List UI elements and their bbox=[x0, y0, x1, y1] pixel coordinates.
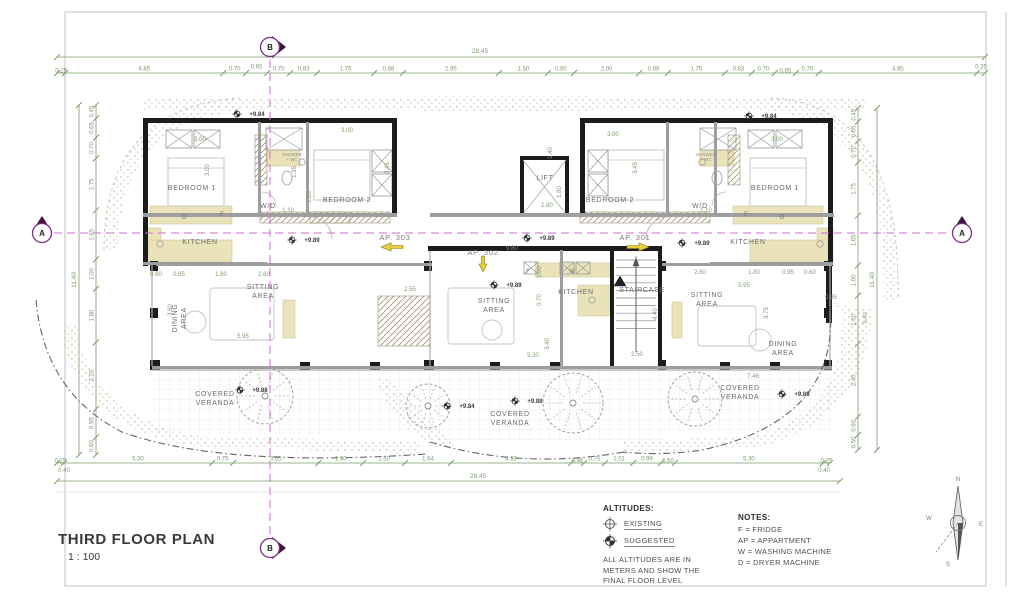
room-label: AREA bbox=[772, 350, 794, 357]
wall-black bbox=[392, 118, 397, 217]
dim-segment-label: 0.50 bbox=[852, 436, 858, 448]
room-label: VERANDA bbox=[721, 394, 760, 401]
note-item: W = WASHING MACHINE bbox=[738, 547, 832, 558]
dim-segment-label: 0.83 bbox=[733, 67, 745, 73]
dim-segment-label: 1.75 bbox=[90, 178, 96, 190]
dim-inplan-label: 1.00 bbox=[537, 266, 543, 278]
stipple-area bbox=[588, 98, 866, 110]
room-label: W/D bbox=[692, 203, 708, 210]
compass-w: W bbox=[926, 516, 932, 522]
room-label: VERANDA bbox=[491, 420, 530, 427]
apartment-label: AP. 301 bbox=[619, 233, 650, 242]
room-label: COVERED bbox=[720, 385, 760, 392]
apartment-label: AP. 302 bbox=[467, 248, 498, 257]
dim-segment-label: 1.00 bbox=[852, 274, 858, 286]
wall-gray bbox=[666, 122, 669, 213]
room-label: KITCHEN bbox=[182, 239, 218, 246]
appliance-label: D bbox=[780, 215, 785, 221]
altitude-value: +9.88 bbox=[252, 388, 268, 394]
room-label: BEDROOM 1 bbox=[751, 185, 799, 192]
dim-inplan-label: 5.95 bbox=[738, 283, 750, 289]
dim-segment-label: 1.65 bbox=[852, 234, 858, 246]
wall-black bbox=[150, 308, 158, 318]
room-label: AREA bbox=[252, 293, 274, 300]
dim-segment-label: 1.64 bbox=[422, 457, 434, 463]
dim-segment-label: 1.50 bbox=[378, 457, 390, 463]
dim-segment-label: 1.01 bbox=[613, 457, 625, 463]
altitude-value: +9.88 bbox=[794, 392, 810, 398]
wall-gray bbox=[560, 250, 563, 366]
dim-inplan-label: 2.60 bbox=[258, 272, 270, 278]
floor-plan-drawing: 28.450.254.850.700.650.700.831.750.882.9… bbox=[0, 0, 1024, 594]
wall-black bbox=[143, 118, 148, 217]
altitude-value: +9.84 bbox=[761, 114, 777, 120]
dim-segment-label: 1.75 bbox=[691, 67, 703, 73]
dim-segment-label: 0.70 bbox=[852, 145, 858, 157]
dim-segment-label: 2.40 bbox=[852, 374, 858, 386]
dim-segment-label: 0.83 bbox=[298, 67, 310, 73]
suggested-altitude-icon bbox=[603, 534, 619, 548]
dim-inplan-label: 0.60 bbox=[150, 272, 162, 278]
room-label: LIFT bbox=[536, 175, 553, 182]
dim-segment-label: 0.65 bbox=[852, 125, 858, 137]
dim-inplan-label: 0.95 bbox=[173, 272, 185, 278]
hatched-wall bbox=[728, 135, 740, 185]
counter bbox=[283, 300, 295, 338]
dim-inplan-label: 2.60 bbox=[694, 270, 706, 276]
wall-gray bbox=[662, 366, 832, 369]
dim-segment-label: 0.75 bbox=[589, 457, 601, 463]
dim-segment-label: 0.70 bbox=[229, 67, 241, 73]
title-block: THIRD FLOOR PLAN 1 : 100 bbox=[58, 531, 215, 563]
existing-altitude-icon bbox=[603, 517, 619, 531]
stair-arrow-head bbox=[633, 258, 639, 266]
dim-inplan-label: 3.00 bbox=[341, 128, 353, 134]
dim-segment-label: 1.80 bbox=[90, 309, 96, 321]
dim-segment-label: 1.75 bbox=[852, 182, 858, 194]
drawing-scale: 1 : 100 bbox=[68, 551, 215, 563]
altitude-value: +9.84 bbox=[249, 112, 265, 118]
suggested-label: SUGGESTED bbox=[624, 536, 675, 547]
wall-gray bbox=[662, 263, 832, 266]
wall-black bbox=[610, 250, 614, 368]
dim-segment-label: 0.88 bbox=[648, 67, 660, 73]
counter bbox=[672, 302, 682, 338]
veranda-paving-area bbox=[152, 372, 434, 434]
room-label: AREA bbox=[181, 307, 188, 329]
micro-label: + WC bbox=[700, 157, 711, 162]
dim-inplan-label: 1.10 bbox=[282, 208, 294, 214]
note-item: D = DRYER MACHINE bbox=[738, 558, 832, 569]
wall-gray bbox=[156, 263, 432, 266]
wall-gray bbox=[714, 122, 717, 213]
note-item: AP = APPARTMENT bbox=[738, 536, 832, 547]
grid-marker-letter: A bbox=[959, 229, 965, 238]
wall-black bbox=[565, 156, 569, 216]
room-label: VERANDA bbox=[196, 400, 235, 407]
room-label: BEDROOM 1 bbox=[168, 185, 216, 192]
dim-segment-label: 0.88 bbox=[383, 67, 395, 73]
dim-segment-label: 0.65 bbox=[251, 65, 263, 71]
room-label: BEDROOM 2 bbox=[586, 197, 634, 204]
altitude-value: +9.89 bbox=[539, 236, 555, 242]
altitudes-heading: ALTITUDES: bbox=[603, 504, 735, 513]
dim-segment-label: 1.50 bbox=[518, 67, 530, 73]
altitude-value: +9.89 bbox=[694, 241, 710, 247]
existing-label: EXISTING bbox=[624, 519, 662, 530]
dim-segment-label: 4.85 bbox=[892, 67, 904, 73]
wall-gray bbox=[518, 214, 569, 217]
dim-segment-label: 0.95 bbox=[90, 417, 96, 429]
dim-segment-label: 2.95 bbox=[445, 67, 457, 73]
dim-extra-label: 0.40 bbox=[818, 468, 830, 474]
bed bbox=[168, 158, 224, 206]
dim-inplan-label: 3.00 bbox=[771, 137, 783, 143]
grid-marker-letter: B bbox=[267, 544, 273, 553]
room-label: SITTING bbox=[478, 298, 511, 305]
dim-inplan-label: 3.75 bbox=[764, 307, 770, 319]
dim-segment-label: 5.30 bbox=[743, 457, 755, 463]
appliance-label: W bbox=[569, 269, 575, 275]
altitudes-note: ALL ALTITUDES ARE IN METERS AND SHOW THE… bbox=[603, 555, 735, 587]
room-label: W/D bbox=[260, 203, 276, 210]
stipple-area bbox=[420, 96, 588, 112]
dim-segment-label: 0.75 bbox=[217, 457, 229, 463]
dim-inplan-label: 7.46 bbox=[747, 374, 759, 380]
grid-marker-letter: B bbox=[267, 43, 273, 52]
floor-plan-sheet: 28.450.254.850.700.650.700.831.750.882.9… bbox=[0, 0, 1024, 594]
dim-segment-label: 3.05 bbox=[270, 457, 282, 463]
dim-segment-label: 1.75 bbox=[340, 67, 352, 73]
room-label: SITTING bbox=[691, 292, 724, 299]
sofa bbox=[448, 288, 514, 344]
dim-inplan-label: 3.00 bbox=[205, 164, 211, 176]
dim-inplan-label: 0.95 bbox=[782, 270, 794, 276]
apartment-direction-arrow bbox=[381, 243, 403, 251]
bed bbox=[314, 150, 370, 200]
dim-inplan-label: 4.40 bbox=[653, 308, 659, 320]
dim-segment-label: 5.30 bbox=[132, 457, 144, 463]
dim-segment-label: 1.60 bbox=[852, 313, 858, 325]
dim-inplan-label: 2.50 bbox=[631, 352, 643, 358]
dim-segment-label: 0.80 bbox=[555, 67, 567, 73]
room-label: SITTING bbox=[247, 284, 280, 291]
dim-total-label: 28.45 bbox=[470, 473, 487, 480]
room-label: AREA bbox=[483, 307, 505, 314]
stipple-area bbox=[143, 98, 420, 110]
dim-segment-label: 1.00 bbox=[90, 268, 96, 280]
wall-gray bbox=[428, 366, 664, 369]
dim-segment-label: 0.65 bbox=[90, 121, 96, 133]
dim-segment-label: 1.65 bbox=[90, 228, 96, 240]
dim-inplan-label: 1.35 bbox=[292, 166, 298, 178]
altitude-value: +9.89 bbox=[304, 238, 320, 244]
dim-segment-label: 0.25 bbox=[55, 69, 67, 75]
dim-segment-label: 0.65 bbox=[780, 69, 792, 75]
dim-segment-label: 0.50 bbox=[662, 459, 674, 465]
wall-gray bbox=[152, 366, 434, 369]
compass-e: E bbox=[979, 522, 983, 528]
room-label: COVERED bbox=[195, 391, 235, 398]
dim-inplan-label: 1.80 bbox=[215, 272, 227, 278]
note-item: F = FRIDGE bbox=[738, 525, 832, 536]
dim-segment-label: 0.45 bbox=[90, 105, 96, 117]
dim-inplan-label: 3.40 bbox=[545, 338, 551, 350]
dim-inplan-label: 1.80 bbox=[557, 186, 563, 198]
table bbox=[482, 320, 502, 340]
room-label: BEDROOM 2 bbox=[323, 197, 371, 204]
dim-extra-label: 0.40 bbox=[58, 468, 70, 474]
dim-segment-label: 0.70 bbox=[273, 67, 285, 73]
dim-segment-label: 0.70 bbox=[758, 67, 770, 73]
dim-segment-label: 0.70 bbox=[90, 142, 96, 154]
grid-marker-letter: A bbox=[39, 229, 45, 238]
notes-heading: NOTES: bbox=[738, 513, 832, 522]
veranda-paving bbox=[152, 372, 832, 442]
dim-total-label: 11.40 bbox=[869, 272, 876, 288]
drawing-title: THIRD FLOOR PLAN bbox=[58, 531, 215, 548]
dim-inplan-label: 0.60 bbox=[804, 270, 816, 276]
dim-inplan-label: 5.30 bbox=[527, 353, 539, 359]
wall-gray bbox=[258, 122, 261, 213]
dim-segment-label: 2.25 bbox=[90, 369, 96, 381]
wall-black bbox=[828, 118, 833, 217]
dim-segment-label: 0.46 bbox=[572, 459, 584, 465]
dim-total-label: 11.40 bbox=[71, 272, 78, 288]
wall-black bbox=[828, 217, 833, 266]
dim-segment-label: 0.45 bbox=[852, 108, 858, 120]
dim-segment-label: 0.70 bbox=[802, 67, 814, 73]
dim-inplan-label: 2.55 bbox=[404, 287, 416, 293]
dim-segment-label: 2.00 bbox=[601, 67, 613, 73]
compass-rose: NESW bbox=[926, 477, 983, 568]
wall-black bbox=[580, 118, 833, 123]
stair-up-marker bbox=[614, 276, 626, 286]
compass-s: S bbox=[946, 562, 950, 568]
bed bbox=[608, 150, 664, 200]
bed bbox=[750, 158, 806, 206]
wall-black bbox=[580, 118, 585, 217]
notes-block: NOTES: F = FRIDGE AP = APPARTMENT W = WA… bbox=[738, 513, 832, 569]
staircase bbox=[614, 256, 656, 352]
dim-inplan-label: 3.00 bbox=[607, 132, 619, 138]
appliance-label: F bbox=[526, 269, 530, 275]
dim-total-label: 28.45 bbox=[472, 48, 489, 55]
dim-inplan-label: 3.45 bbox=[633, 162, 639, 174]
dim-inplan-label: 1.00 bbox=[307, 191, 313, 203]
altitudes-legend: ALTITUDES: EXISTING SUGGESTED ALL ALTITU… bbox=[603, 504, 735, 587]
compass-n: N bbox=[956, 477, 960, 483]
wall-black bbox=[520, 156, 524, 216]
dim-inplan-label: 5.95 bbox=[237, 334, 249, 340]
dim-segment-label: 4.85 bbox=[138, 67, 150, 73]
sofa bbox=[698, 306, 756, 346]
dim-segment-label: 0.25 bbox=[975, 65, 987, 71]
dim-segment-label: 0.99 bbox=[641, 457, 653, 463]
room-label: KITCHEN bbox=[730, 239, 766, 246]
dim-segment-label: 4.30 bbox=[505, 457, 517, 463]
appliance-label: D bbox=[182, 215, 187, 221]
dim-inplan-label: 1.80 bbox=[748, 270, 760, 276]
altitude-value: +9.89 bbox=[506, 283, 522, 289]
micro-label: + WC bbox=[286, 157, 297, 162]
dim-inplan-label: 9.80 bbox=[506, 246, 518, 252]
dim-inplan-label: 3.00 bbox=[194, 137, 206, 143]
hatched-wall bbox=[378, 296, 430, 346]
altitude-value: +9.84 bbox=[459, 404, 475, 410]
dim-inplan-label: 0.70 bbox=[537, 294, 543, 306]
apartment-direction-arrow bbox=[479, 256, 487, 272]
dim-inplan-label: 0.95 bbox=[825, 295, 837, 301]
dim-segment-label: 0.60 bbox=[90, 440, 96, 452]
wall-black bbox=[143, 217, 148, 266]
dim-segment-label: 0.60 bbox=[852, 419, 858, 431]
dim-segment-label: 1.60 bbox=[335, 457, 347, 463]
room-label: DINING bbox=[769, 341, 798, 348]
wall-black bbox=[520, 156, 569, 160]
room-label: STAIRCASE bbox=[619, 287, 664, 294]
room-label: KITCHEN bbox=[558, 289, 594, 296]
appliance-label: F bbox=[744, 212, 748, 218]
dim-inplan-label: 1.40 bbox=[548, 147, 554, 159]
dim-inplan-label: 3.45 bbox=[385, 162, 391, 174]
room-label: COVERED bbox=[490, 411, 530, 418]
appliance-label: F bbox=[220, 212, 224, 218]
toilet bbox=[282, 171, 292, 185]
veranda-paving-area bbox=[660, 372, 832, 430]
room-label: DINING bbox=[172, 304, 179, 333]
room-label: AREA bbox=[696, 301, 718, 308]
wall-black bbox=[826, 263, 832, 323]
apartment-label: AP. 303 bbox=[379, 233, 410, 242]
dim-inplan-label: 1.80 bbox=[541, 203, 553, 209]
dim-inplan-label: 3.40 bbox=[863, 312, 869, 324]
altitude-value: +9.88 bbox=[527, 399, 543, 405]
